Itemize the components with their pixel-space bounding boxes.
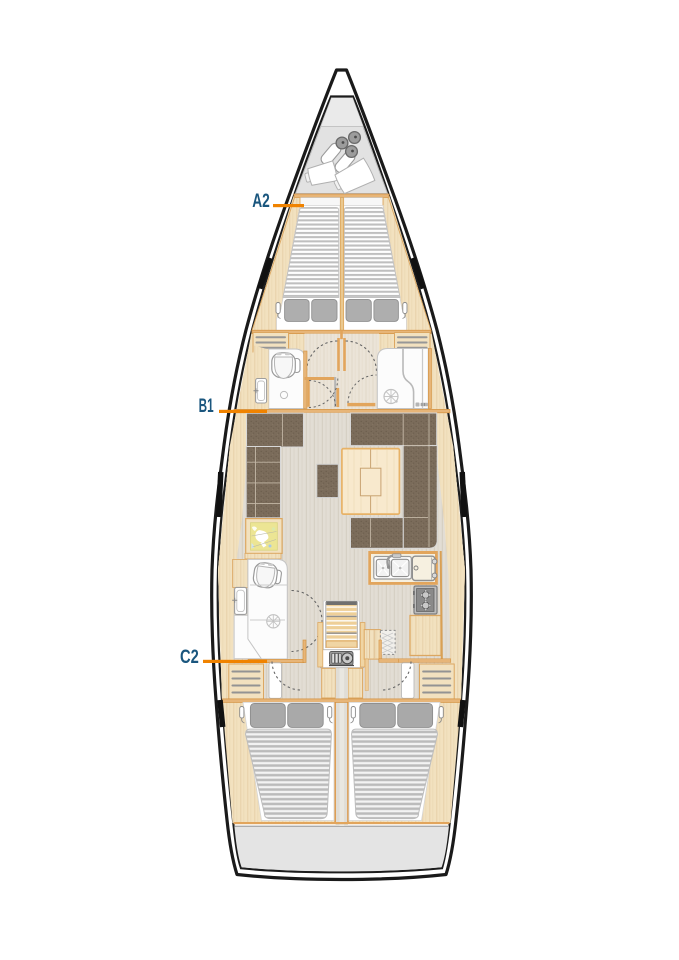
svg-text:A2: A2 bbox=[252, 191, 270, 212]
svg-text:C2: C2 bbox=[180, 647, 199, 668]
svg-text:B1: B1 bbox=[199, 396, 214, 417]
